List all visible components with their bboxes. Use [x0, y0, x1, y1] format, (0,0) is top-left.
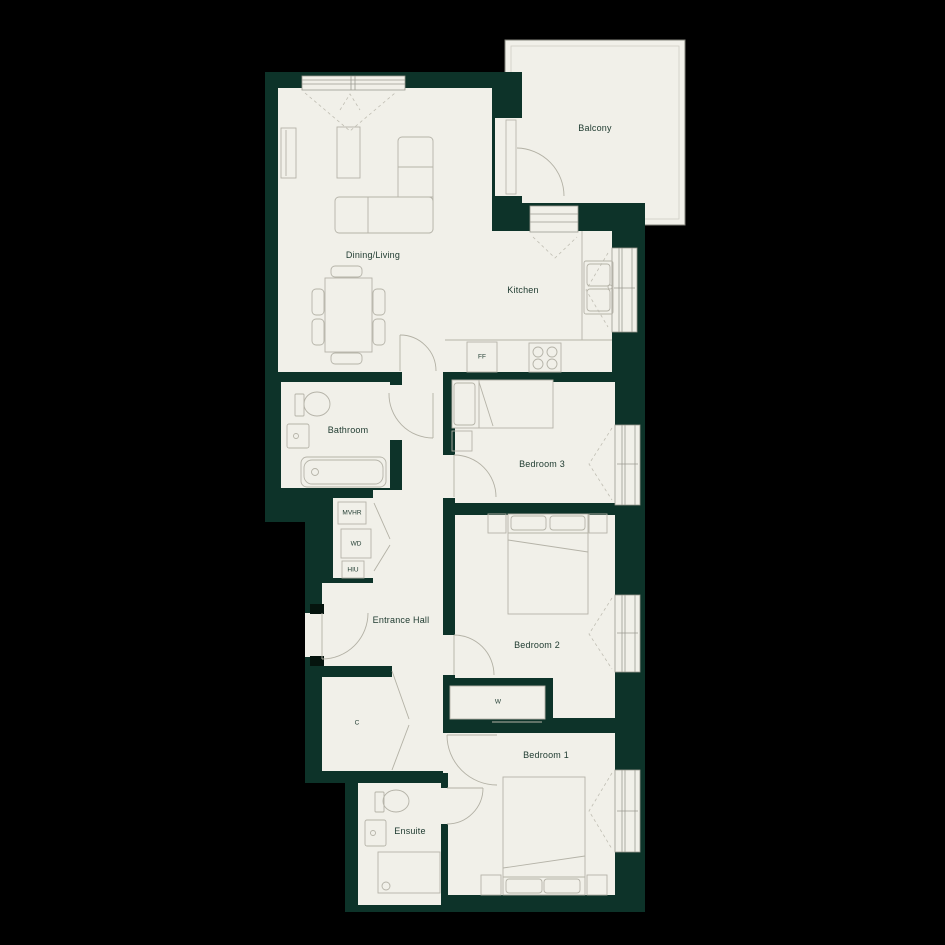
fixture-label-wd: WD	[351, 541, 362, 548]
floor-bathroom	[281, 382, 390, 488]
room-label-entrance-hall: Entrance Hall	[373, 615, 430, 625]
chair	[331, 353, 362, 364]
fixture-label-mvhr: MVHR	[342, 510, 361, 517]
chair	[331, 266, 362, 277]
room-label-bedroom3: Bedroom 3	[519, 459, 565, 469]
room-label-kitchen: Kitchen	[507, 285, 538, 295]
room-label-ensuite: Ensuite	[394, 826, 425, 836]
chair	[373, 319, 385, 345]
floorplan: Balcony Dining/Living Kitchen Bathroom B…	[0, 0, 945, 945]
room-label-bedroom1: Bedroom 1	[523, 750, 569, 760]
single-bed	[452, 380, 553, 428]
chair	[312, 319, 324, 345]
room-label-dining-living: Dining/Living	[346, 250, 400, 260]
fixture-label-wardrobe: W	[495, 699, 501, 706]
floorplan-drawing	[0, 0, 945, 945]
closet-wall	[322, 666, 392, 677]
fixture-label-cupboard: C	[355, 720, 360, 727]
chair	[312, 289, 324, 315]
chair	[373, 289, 385, 315]
entrance-door-post	[310, 604, 324, 614]
fixture-label-hiu: HIU	[347, 567, 358, 574]
fixture-label-ff: FF	[478, 354, 486, 361]
room-label-bathroom: Bathroom	[328, 425, 369, 435]
room-label-balcony: Balcony	[578, 123, 611, 133]
floor-ensuite	[358, 783, 441, 905]
room-label-bedroom2: Bedroom 2	[514, 640, 560, 650]
